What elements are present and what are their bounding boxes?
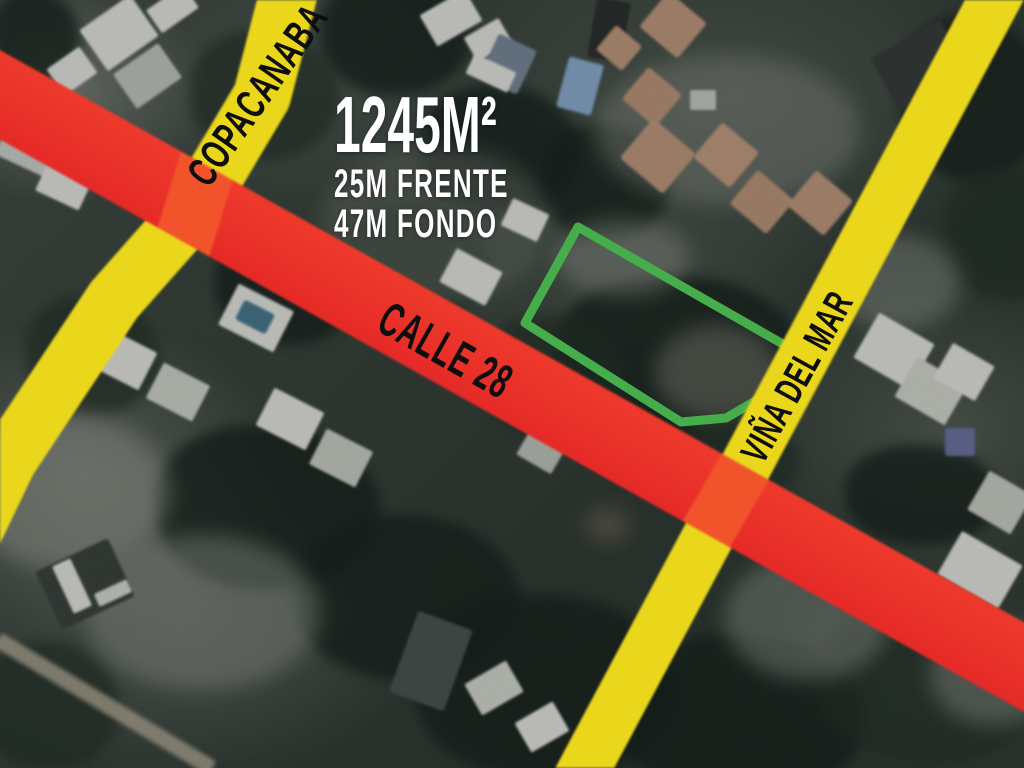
lot-depth-label: 47M FONDO xyxy=(334,206,510,243)
property-map: COPACANABA CALLE 28 VIÑA DEL MAR 1245M² … xyxy=(0,0,1024,768)
lot-dimensions: 1245M² 25M FRENTE 47M FONDO xyxy=(334,88,605,243)
lot-frontage-label: 25M FRENTE xyxy=(334,166,510,203)
lot-area-label: 1245M² xyxy=(334,88,497,162)
